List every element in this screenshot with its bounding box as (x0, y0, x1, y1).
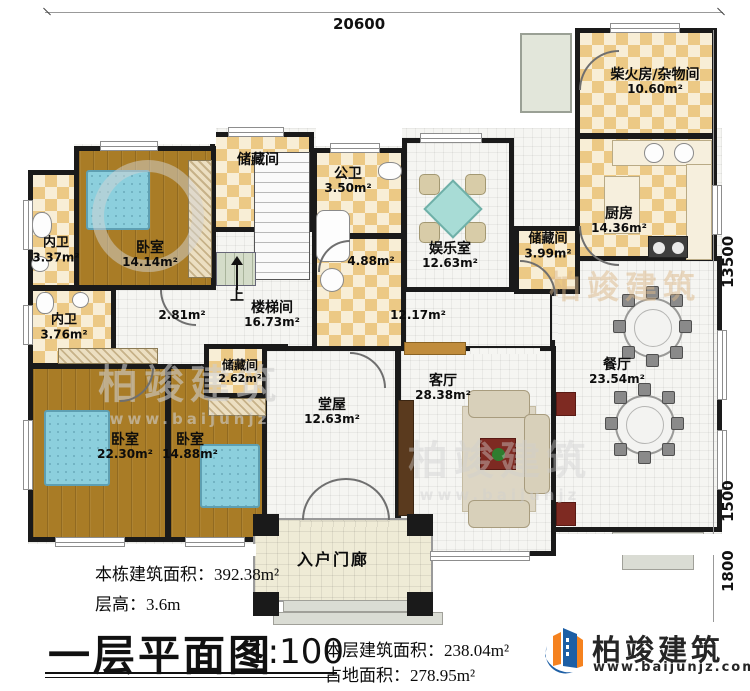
chair (465, 174, 486, 195)
sofa (468, 500, 530, 528)
title-underline (45, 677, 337, 678)
room-label-public-bath: 公卫 3.50m² (324, 166, 371, 196)
window (228, 127, 284, 137)
room-label-kitchen: 厨房 14.36m² (591, 206, 647, 236)
window (330, 143, 380, 153)
chair (622, 294, 635, 307)
room-label-dining: 餐厅 23.54m² (589, 357, 645, 387)
chair (638, 451, 651, 464)
stairs-up-arrow (231, 256, 243, 265)
window (610, 23, 680, 33)
chair (614, 443, 627, 456)
room-label-stairhall: 楼梯间 16.73m² (244, 300, 300, 330)
room-label-bedroom-3: 卧室 14.88m² (162, 432, 218, 462)
wardrobe (58, 348, 158, 364)
chair (646, 354, 659, 367)
tv-cabinet (398, 400, 414, 516)
company-logo-icon (543, 622, 587, 674)
title-underline (45, 672, 337, 674)
toilet (32, 212, 52, 238)
room-label-main-hall: 堂屋 12.63m² (304, 397, 360, 427)
stove-burner (653, 242, 665, 254)
building-total-area: 本栋建筑面积：392.38m² (95, 560, 279, 585)
exterior-area (556, 534, 722, 555)
kitchen-sink (674, 143, 694, 163)
window (430, 551, 530, 561)
area-label-bath: 4.88m² (347, 255, 394, 269)
dimension-top-label: 20600 (333, 15, 385, 33)
chair (670, 346, 683, 359)
window (23, 305, 33, 345)
wardrobe (208, 398, 266, 416)
chair (670, 294, 683, 307)
dimension-right-label: 13500 (719, 236, 737, 288)
stove (648, 236, 688, 258)
room-label-porch: 入户门廊 (297, 551, 369, 569)
window (55, 537, 125, 547)
room-label-storage-top: 储藏间 (237, 152, 279, 168)
label-stairs-up: 上 (230, 288, 244, 304)
dining-table-set (607, 387, 683, 463)
chair (662, 443, 675, 456)
window (185, 537, 245, 547)
room-label-bedroom-2: 卧室 22.30m² (97, 432, 153, 462)
floor-height: 层高：3.6m (95, 590, 180, 615)
room-label-entertainment: 娱乐室 12.63m² (422, 241, 478, 271)
stairs-arrow-stem (236, 264, 238, 290)
area-label-corridor: 12.17m² (390, 309, 446, 323)
chair (465, 222, 486, 243)
chair (662, 391, 675, 404)
room-label-storage-small: 储藏间 2.62m² (218, 359, 261, 385)
area-label-281: 2.81m² (158, 309, 205, 323)
chair (419, 174, 440, 195)
chair (605, 417, 618, 430)
sofa (468, 390, 530, 418)
chair (419, 222, 440, 243)
chair (613, 320, 626, 333)
dimension-line-top (45, 12, 723, 13)
window (23, 420, 33, 490)
sofa (524, 414, 550, 494)
stairs-flight (254, 152, 310, 280)
porch-pillar (253, 514, 279, 536)
footprint-area: 占地面积：278.95m² (325, 661, 475, 686)
window (420, 133, 482, 143)
room-label-ensuite-1: 内卫 3.37m² (32, 237, 79, 266)
chair (679, 320, 692, 333)
dimension-1500-label: 1500 (719, 480, 737, 522)
room-label-living: 客厅 28.38m² (415, 373, 471, 403)
dimension-1800-label: 1800 (719, 550, 737, 592)
window (100, 141, 158, 151)
plant (492, 448, 505, 461)
living-opening (470, 348, 540, 354)
chair (671, 417, 684, 430)
kitchen-counter (686, 164, 712, 260)
porch-pillar (407, 592, 433, 616)
cabinet (556, 392, 576, 416)
dining-opening (552, 296, 558, 340)
stove-burner (672, 242, 684, 254)
room-label-firewood: 柴火房/杂物间 10.60m² (610, 67, 699, 97)
toilet (36, 292, 54, 314)
kitchen-sink (644, 143, 664, 163)
room-label-bedroom-1: 卧室 14.14m² (122, 240, 178, 270)
porch-pillar (407, 514, 433, 536)
dining-table-set (615, 290, 691, 366)
entrance-opening (300, 521, 390, 527)
company-logo-site: www.baijunjz.com (593, 660, 750, 675)
shoe-cabinet (404, 342, 466, 355)
room-label-ensuite-2: 内卫 3.76m² (40, 314, 87, 343)
cabinet (556, 502, 576, 526)
exterior-area (28, 128, 74, 170)
toilet (378, 162, 402, 180)
floorplan-page: { "plan": { "rooms": { "chaihuofang": { … (0, 0, 750, 691)
porch-pillar (253, 592, 279, 616)
floor-plan: 20600 13500 1500 1800 (0, 0, 750, 691)
coffee-table (480, 438, 516, 470)
window (712, 185, 722, 235)
room-label-storage-right: 储藏间 3.99m² (524, 233, 571, 262)
window (717, 330, 727, 400)
side-terrace (520, 33, 572, 113)
chair (614, 391, 627, 404)
floor-area: 本层建筑面积：238.04m² (325, 636, 509, 661)
chair (646, 286, 659, 299)
sink (72, 292, 89, 308)
